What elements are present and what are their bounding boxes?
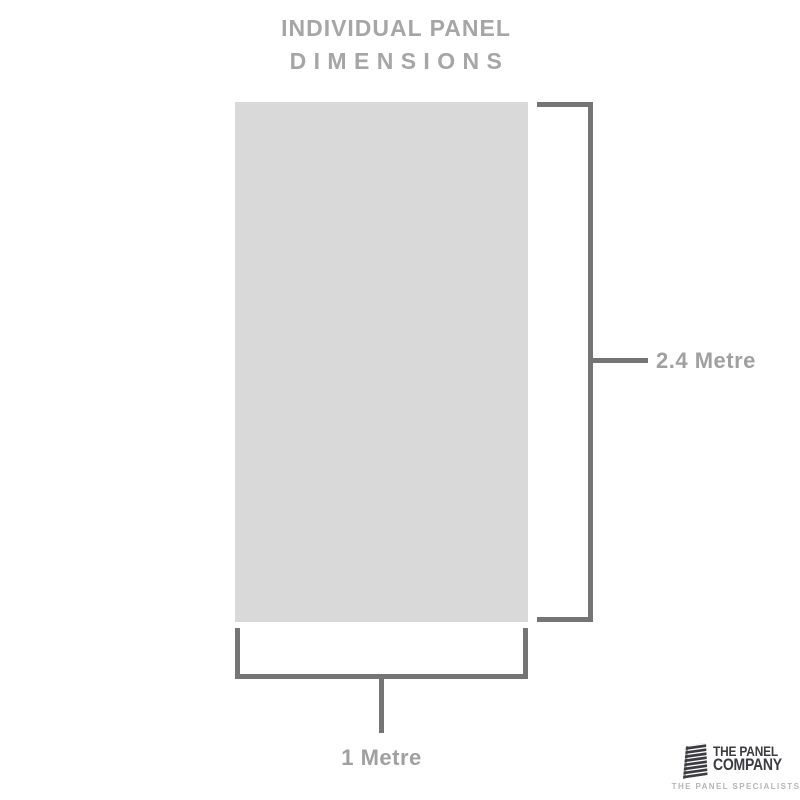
- width-bracket-tick: [379, 679, 384, 733]
- title-line-1: INDIVIDUAL PANEL: [0, 15, 792, 42]
- title-line-2: D I M E N S I O N S: [0, 48, 792, 75]
- stacked-panels-icon: [680, 742, 710, 780]
- height-bracket-top-arm: [537, 102, 593, 107]
- panel-rectangle: [235, 102, 528, 622]
- company-name: THE PANEL COMPANY: [713, 745, 794, 773]
- width-bracket-right-arm: [523, 628, 528, 679]
- panel-dimensions-infographic: INDIVIDUAL PANEL D I M E N S I O N S 2.4…: [0, 0, 800, 800]
- company-logo: THE PANEL COMPANY THE PANEL SPECIALISTS: [680, 740, 792, 792]
- height-bracket-bottom-arm: [537, 617, 593, 622]
- width-bracket-left-arm: [235, 628, 240, 679]
- height-dimension-label: 2.4 Metre: [656, 348, 756, 374]
- company-tagline: THE PANEL SPECIALISTS: [658, 782, 800, 791]
- width-dimension-label: 1 Metre: [235, 745, 528, 771]
- company-name-line-2: COMPANY: [713, 758, 782, 773]
- height-bracket-tick: [593, 358, 648, 363]
